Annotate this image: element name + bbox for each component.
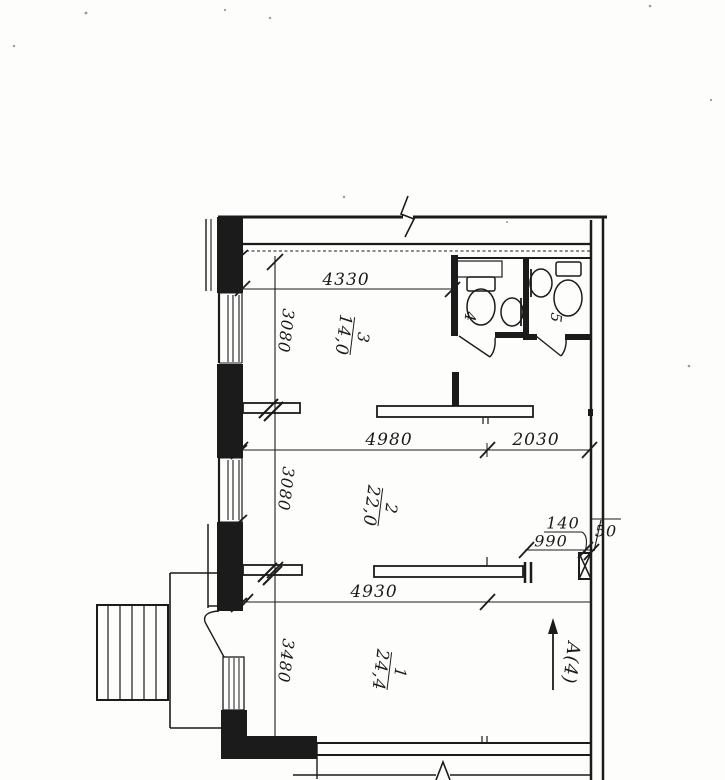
dim-label-4330: 4330 bbox=[322, 270, 369, 290]
wall-pier bbox=[217, 364, 243, 458]
dim-label-4930: 4930 bbox=[350, 582, 397, 602]
dim-label-4980: 4980 bbox=[365, 430, 412, 450]
partition-bar bbox=[374, 566, 523, 577]
porch bbox=[170, 573, 222, 728]
scan-noise-dots bbox=[13, 5, 712, 368]
window-icon bbox=[219, 458, 242, 522]
dim-label-2030: 2030 bbox=[512, 430, 559, 450]
room-label-2: 2 22,0 bbox=[359, 484, 401, 530]
bottom-wall bbox=[221, 710, 591, 780]
room-area: 14,0 bbox=[331, 313, 354, 357]
dim-label-50: 50 bbox=[595, 522, 617, 541]
sink-icon bbox=[501, 298, 523, 326]
wall-pier bbox=[217, 522, 243, 611]
toilet-partition-walls bbox=[451, 255, 592, 408]
room-label-1: 1 24,4 bbox=[368, 648, 410, 694]
floor-plan-linework bbox=[0, 0, 725, 780]
break-line-icon bbox=[436, 762, 450, 780]
toilet-icon bbox=[554, 262, 582, 316]
partition-bar bbox=[377, 406, 533, 417]
top-wall bbox=[218, 196, 607, 258]
dim-label-140: 140 bbox=[546, 514, 580, 533]
wc5-bottom-wall bbox=[565, 334, 592, 340]
wall-nub bbox=[588, 409, 593, 416]
section-arrow-icon bbox=[548, 618, 558, 690]
room-area: 22,0 bbox=[359, 484, 382, 528]
room-number: 2 bbox=[381, 502, 399, 514]
right-wall bbox=[588, 218, 603, 780]
partition-stub bbox=[452, 372, 459, 408]
room-area: 24,4 bbox=[368, 648, 391, 692]
stairs-icon bbox=[97, 605, 168, 700]
wall-pier bbox=[217, 217, 243, 293]
room-number: 3 bbox=[353, 331, 371, 343]
entry-door-swing-icon bbox=[205, 611, 224, 657]
room-label-3: 3 14,0 bbox=[331, 313, 373, 359]
pilaster bbox=[579, 553, 591, 579]
room-number: 1 bbox=[390, 666, 408, 678]
door-swing-icon bbox=[536, 336, 566, 356]
wc5-bottom-wall bbox=[523, 334, 537, 340]
room-label-4: 4 bbox=[460, 311, 479, 324]
wc-dividing-wall bbox=[523, 257, 529, 340]
partition-end-post bbox=[525, 562, 531, 583]
sink-icon bbox=[530, 269, 552, 297]
wc4-bottom-wall bbox=[495, 332, 523, 338]
left-wall bbox=[206, 217, 248, 612]
dim-label-990: 990 bbox=[534, 532, 568, 551]
room-label-5: 5 bbox=[546, 312, 565, 325]
shelf bbox=[457, 261, 502, 277]
door-swing-icon bbox=[459, 336, 495, 357]
floor-plan-drawing: 4330 4980 2030 4930 990 140 50 3080 3080… bbox=[0, 0, 725, 780]
entry-sidelight-window-icon bbox=[223, 657, 244, 710]
window-icon bbox=[219, 293, 242, 363]
